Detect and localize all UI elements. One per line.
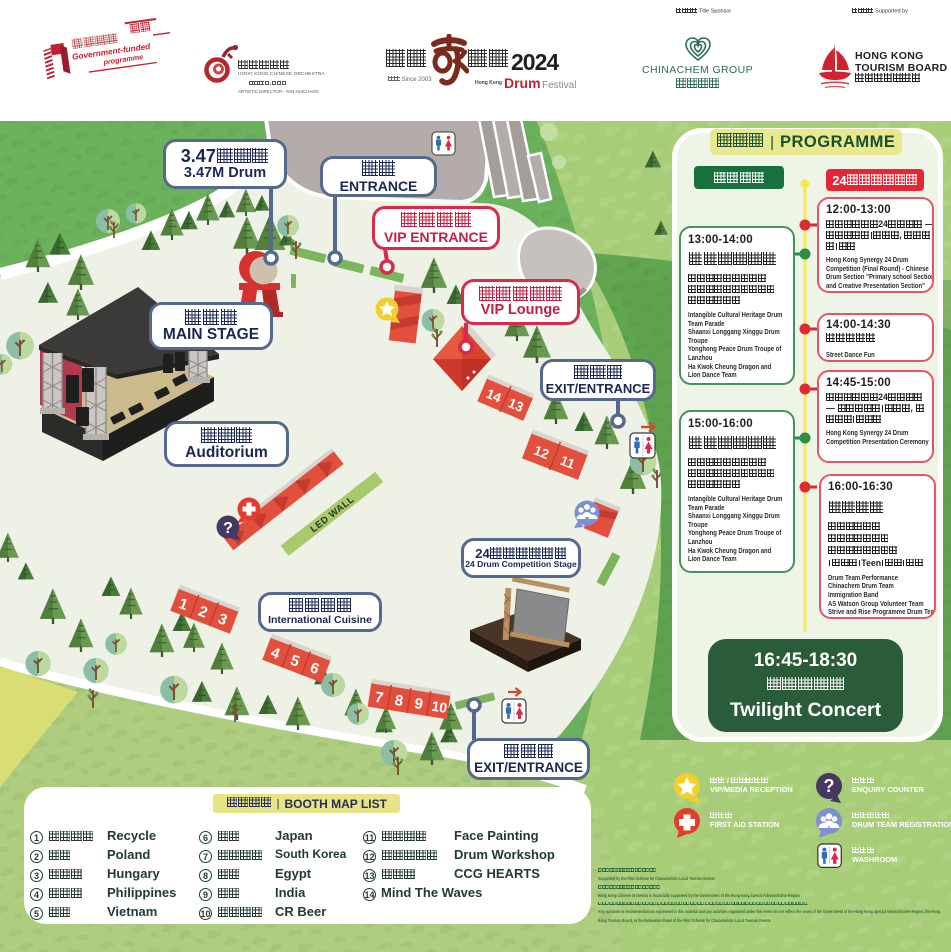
- svg-text:?: ?: [824, 776, 835, 796]
- svg-text:?: ?: [223, 520, 233, 537]
- svg-text:10: 10: [431, 698, 449, 716]
